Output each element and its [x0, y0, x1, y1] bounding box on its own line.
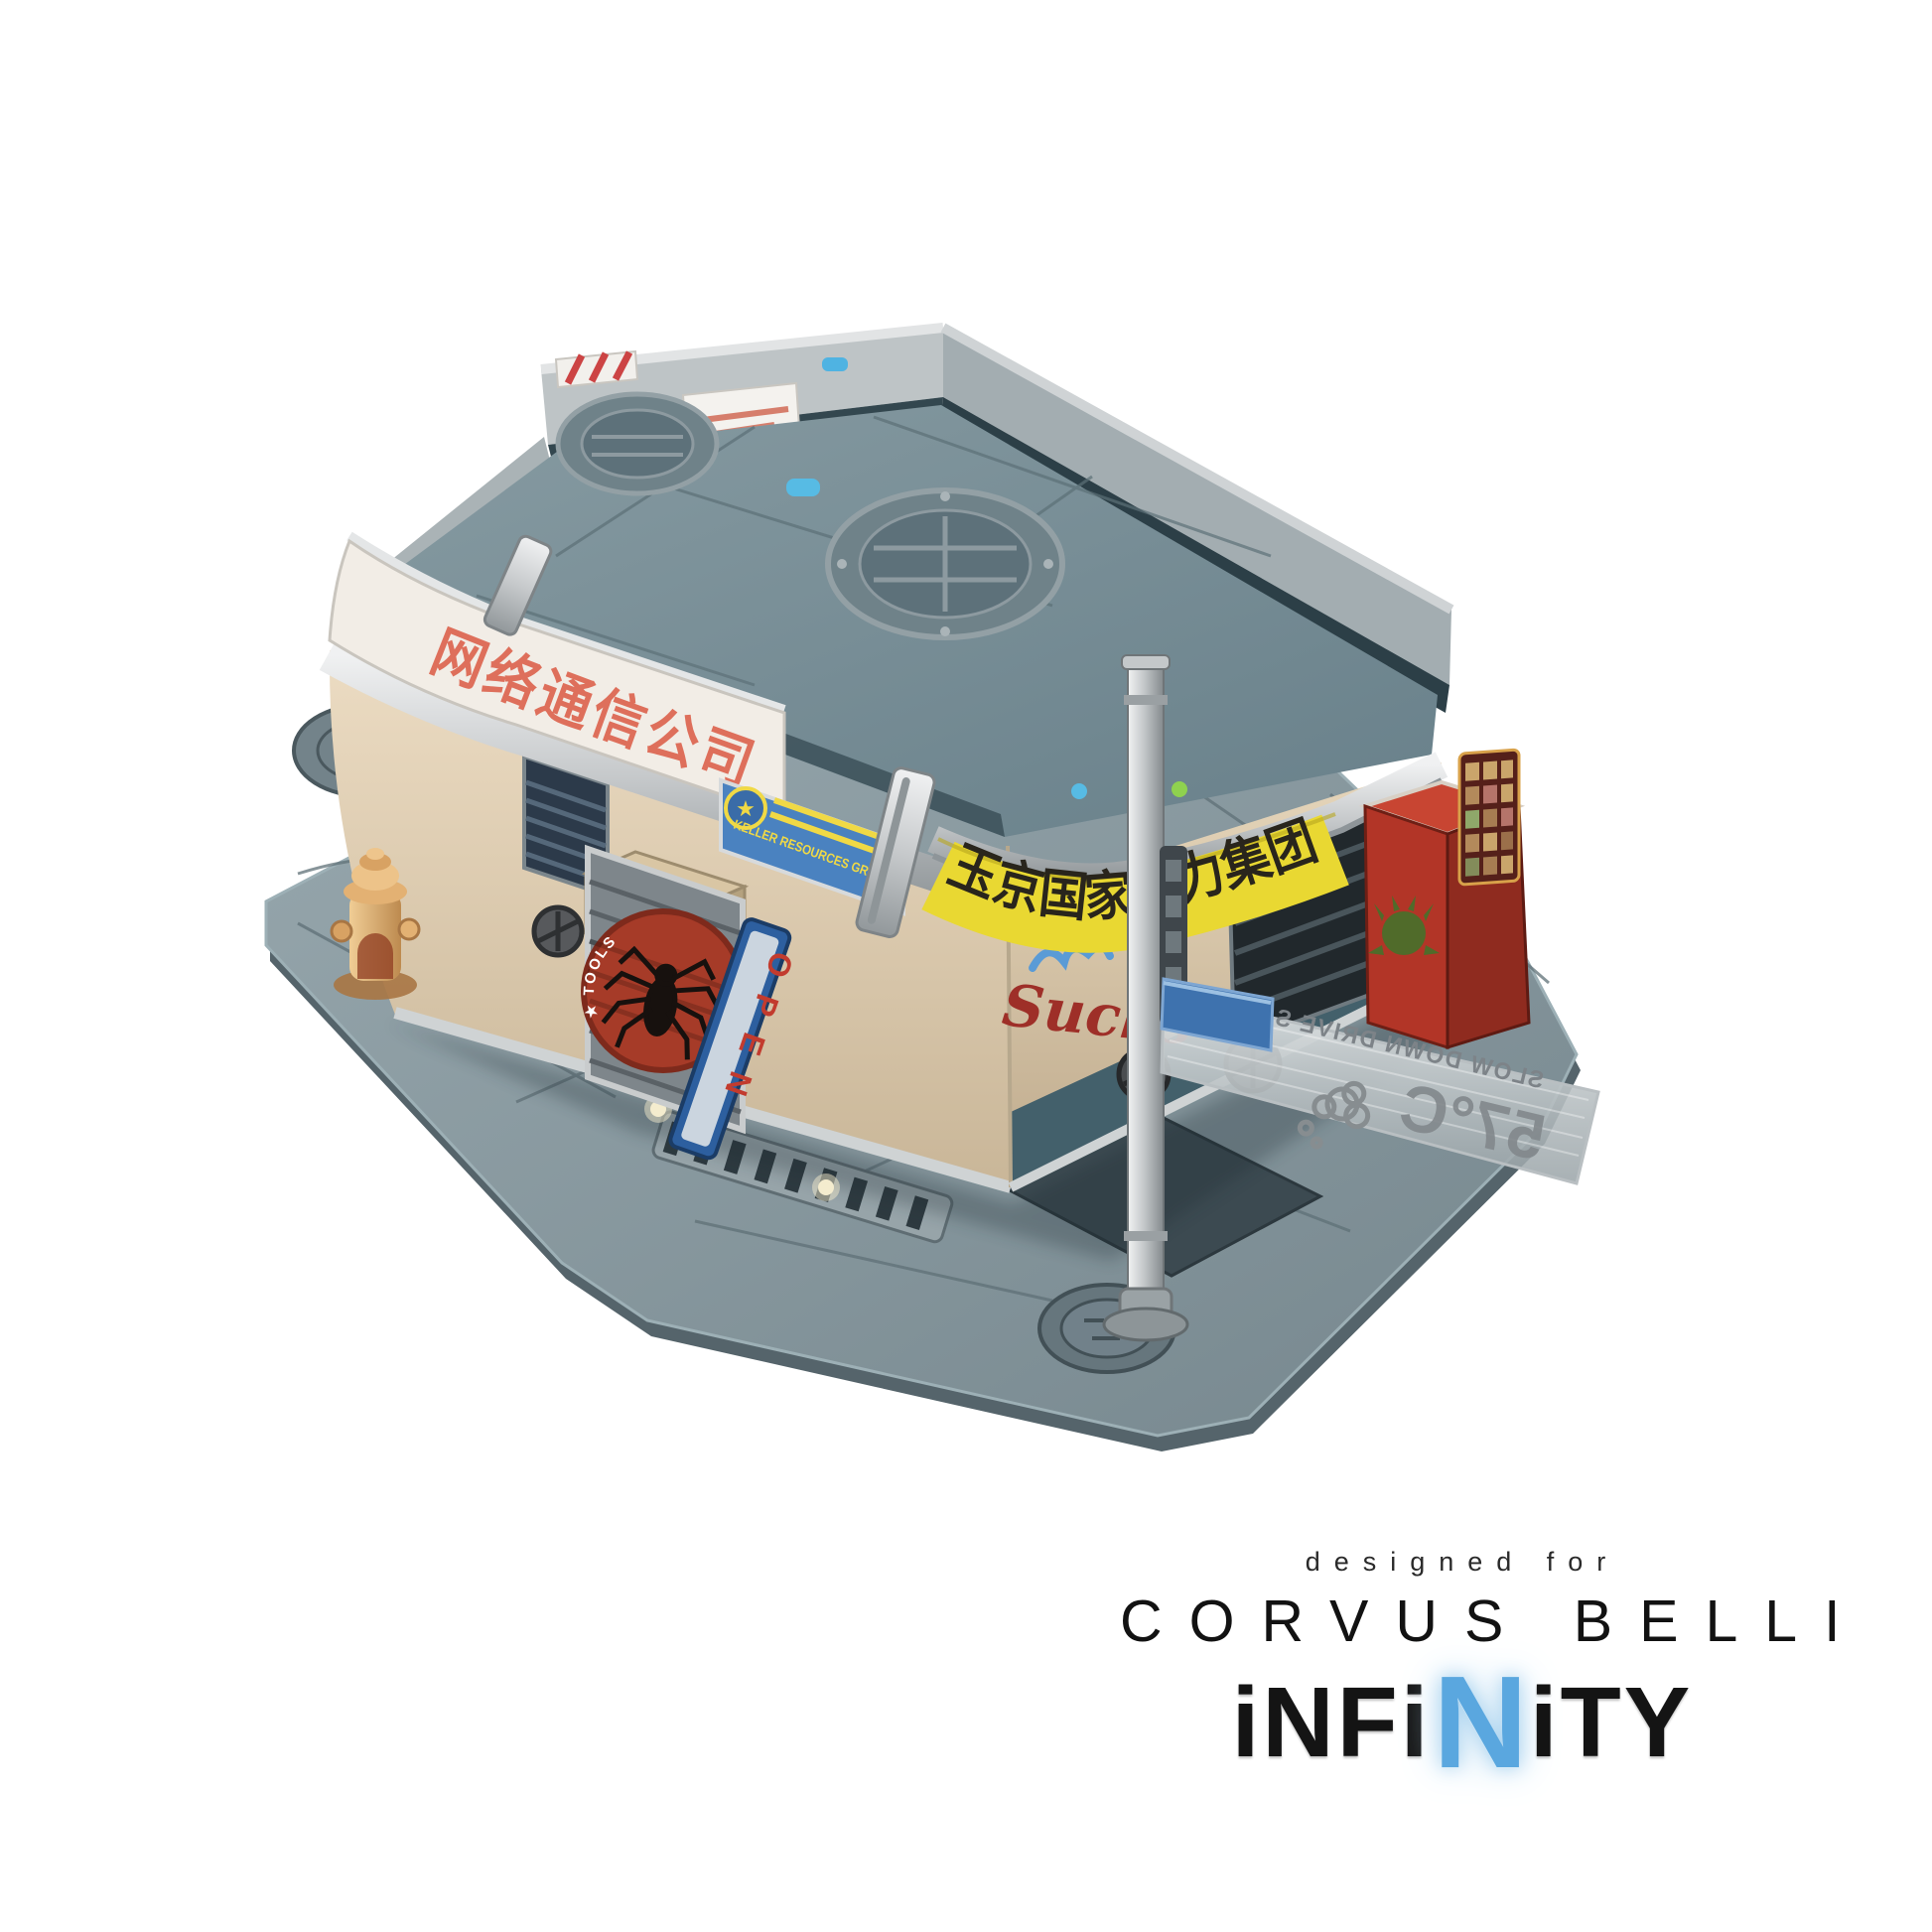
roof-led-green-front	[1172, 781, 1187, 797]
vending-product-window	[1459, 750, 1519, 885]
roof-led-blue-front	[1071, 783, 1087, 799]
svg-text:★: ★	[736, 796, 756, 821]
infinity-logo: iNFi N iTY	[1120, 1657, 1805, 1788]
logo-accent-letter: N	[1433, 1657, 1527, 1788]
product-photo-canvas: ★ TOOLS ★ OPEN	[0, 0, 1932, 1932]
company-name: CORVUS BELLI	[1120, 1587, 1805, 1655]
roof-led-blue-back	[822, 357, 848, 371]
roof-led-cyan	[786, 479, 820, 496]
logo-letters-suffix: iTY	[1530, 1673, 1694, 1772]
logo-letters-prefix: iNFi	[1232, 1673, 1432, 1772]
roof-vent-large	[828, 490, 1062, 637]
valve-wheel-left	[534, 907, 582, 955]
designed-for-label: designed for	[1120, 1547, 1805, 1578]
roof-vent-small	[558, 394, 717, 493]
branding-block: designed for CORVUS BELLI iNFi N iTY	[1120, 1547, 1805, 1788]
